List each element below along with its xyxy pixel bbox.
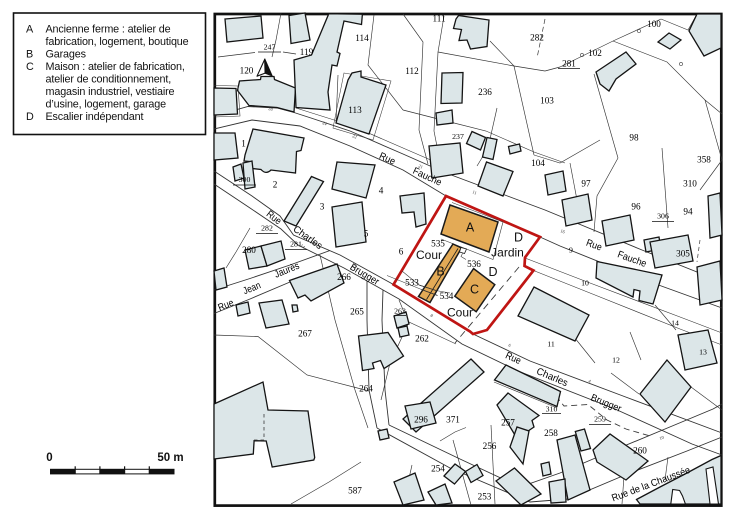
svg-text:A: A [466, 221, 475, 235]
svg-text:262: 262 [415, 334, 429, 344]
svg-text:C: C [26, 61, 34, 73]
svg-text:259: 259 [594, 415, 606, 424]
svg-text:534: 534 [440, 291, 454, 301]
svg-text:3: 3 [320, 202, 325, 212]
svg-text:96: 96 [631, 202, 641, 212]
svg-text:B: B [26, 49, 33, 61]
svg-text:d’usine, logement, garage: d’usine, logement, garage [46, 99, 167, 111]
svg-text:2: 2 [273, 180, 278, 190]
svg-text:12: 12 [612, 356, 620, 365]
svg-text:253: 253 [478, 492, 492, 502]
svg-text:113: 113 [348, 105, 362, 115]
svg-text:587: 587 [348, 486, 362, 496]
svg-text:103: 103 [540, 96, 554, 106]
svg-text:Cour: Cour [447, 306, 473, 320]
svg-text:358: 358 [697, 155, 711, 165]
svg-text:104: 104 [531, 158, 545, 168]
svg-text:14: 14 [671, 319, 679, 328]
svg-text:6: 6 [399, 247, 404, 257]
svg-text:Escalier indépendant: Escalier indépendant [46, 111, 144, 123]
svg-text:B: B [436, 265, 444, 279]
svg-text:Ancienne ferme : atelier de: Ancienne ferme : atelier de [46, 24, 171, 36]
svg-text:281: 281 [562, 59, 576, 69]
svg-text:282: 282 [261, 224, 273, 233]
svg-text:119: 119 [300, 47, 314, 57]
svg-text:237: 237 [452, 132, 464, 141]
svg-text:265: 265 [350, 307, 364, 317]
svg-text:236: 236 [478, 87, 492, 97]
svg-text:247: 247 [264, 43, 276, 52]
svg-text:atelier de conditionnement,: atelier de conditionnement, [46, 74, 172, 86]
svg-text:98: 98 [629, 133, 639, 143]
svg-text:D: D [488, 265, 497, 279]
svg-text:9: 9 [569, 246, 573, 255]
svg-text:A: A [26, 24, 34, 36]
svg-text:0: 0 [46, 452, 52, 464]
svg-text:94: 94 [683, 207, 693, 217]
svg-text:260: 260 [633, 446, 647, 456]
svg-text:Garages: Garages [46, 49, 87, 61]
svg-text:Cour: Cour [416, 248, 442, 262]
svg-text:264: 264 [359, 384, 373, 394]
svg-text:Maison : atelier de fabricatio: Maison : atelier de fabrication, [46, 61, 185, 73]
svg-text:310: 310 [683, 179, 697, 189]
svg-text:D: D [26, 111, 34, 123]
svg-text:305: 305 [676, 249, 690, 259]
svg-text:280: 280 [242, 245, 256, 255]
svg-text:fabrication, logement, boutiqu: fabrication, logement, boutique [46, 36, 189, 48]
svg-text:267: 267 [298, 329, 312, 339]
svg-text:296: 296 [414, 415, 428, 425]
svg-text:100: 100 [647, 19, 661, 29]
svg-text:254: 254 [431, 464, 445, 474]
svg-text:120: 120 [240, 66, 254, 76]
svg-text:1: 1 [241, 139, 246, 149]
svg-text:C: C [470, 283, 479, 297]
svg-text:D: D [514, 231, 523, 245]
svg-text:258: 258 [544, 428, 558, 438]
svg-text:97: 97 [581, 179, 591, 189]
svg-text:257: 257 [501, 418, 515, 428]
svg-text:4: 4 [379, 186, 384, 196]
svg-text:10: 10 [581, 279, 589, 288]
svg-text:Jardin: Jardin [491, 246, 524, 260]
svg-text:300: 300 [239, 175, 251, 184]
svg-text:535: 535 [431, 239, 445, 249]
svg-text:310: 310 [546, 405, 558, 414]
svg-text:magasin industriel, vestiaire: magasin industriel, vestiaire [46, 86, 175, 98]
svg-text:112: 112 [405, 66, 419, 76]
svg-text:256: 256 [483, 441, 497, 451]
svg-text:306: 306 [657, 212, 669, 221]
svg-text:102: 102 [588, 48, 602, 58]
svg-text:263: 263 [394, 307, 406, 316]
svg-text:536: 536 [467, 259, 481, 269]
svg-text:371: 371 [446, 415, 460, 425]
svg-text:266: 266 [337, 272, 351, 282]
svg-text:114: 114 [355, 33, 369, 43]
svg-text:282: 282 [530, 33, 544, 43]
svg-text:111: 111 [432, 14, 446, 24]
svg-text:533: 533 [405, 278, 419, 288]
svg-text:5: 5 [364, 229, 369, 239]
svg-text:50 m: 50 m [157, 452, 183, 464]
svg-text:11: 11 [547, 340, 555, 349]
svg-text:13: 13 [699, 348, 707, 357]
